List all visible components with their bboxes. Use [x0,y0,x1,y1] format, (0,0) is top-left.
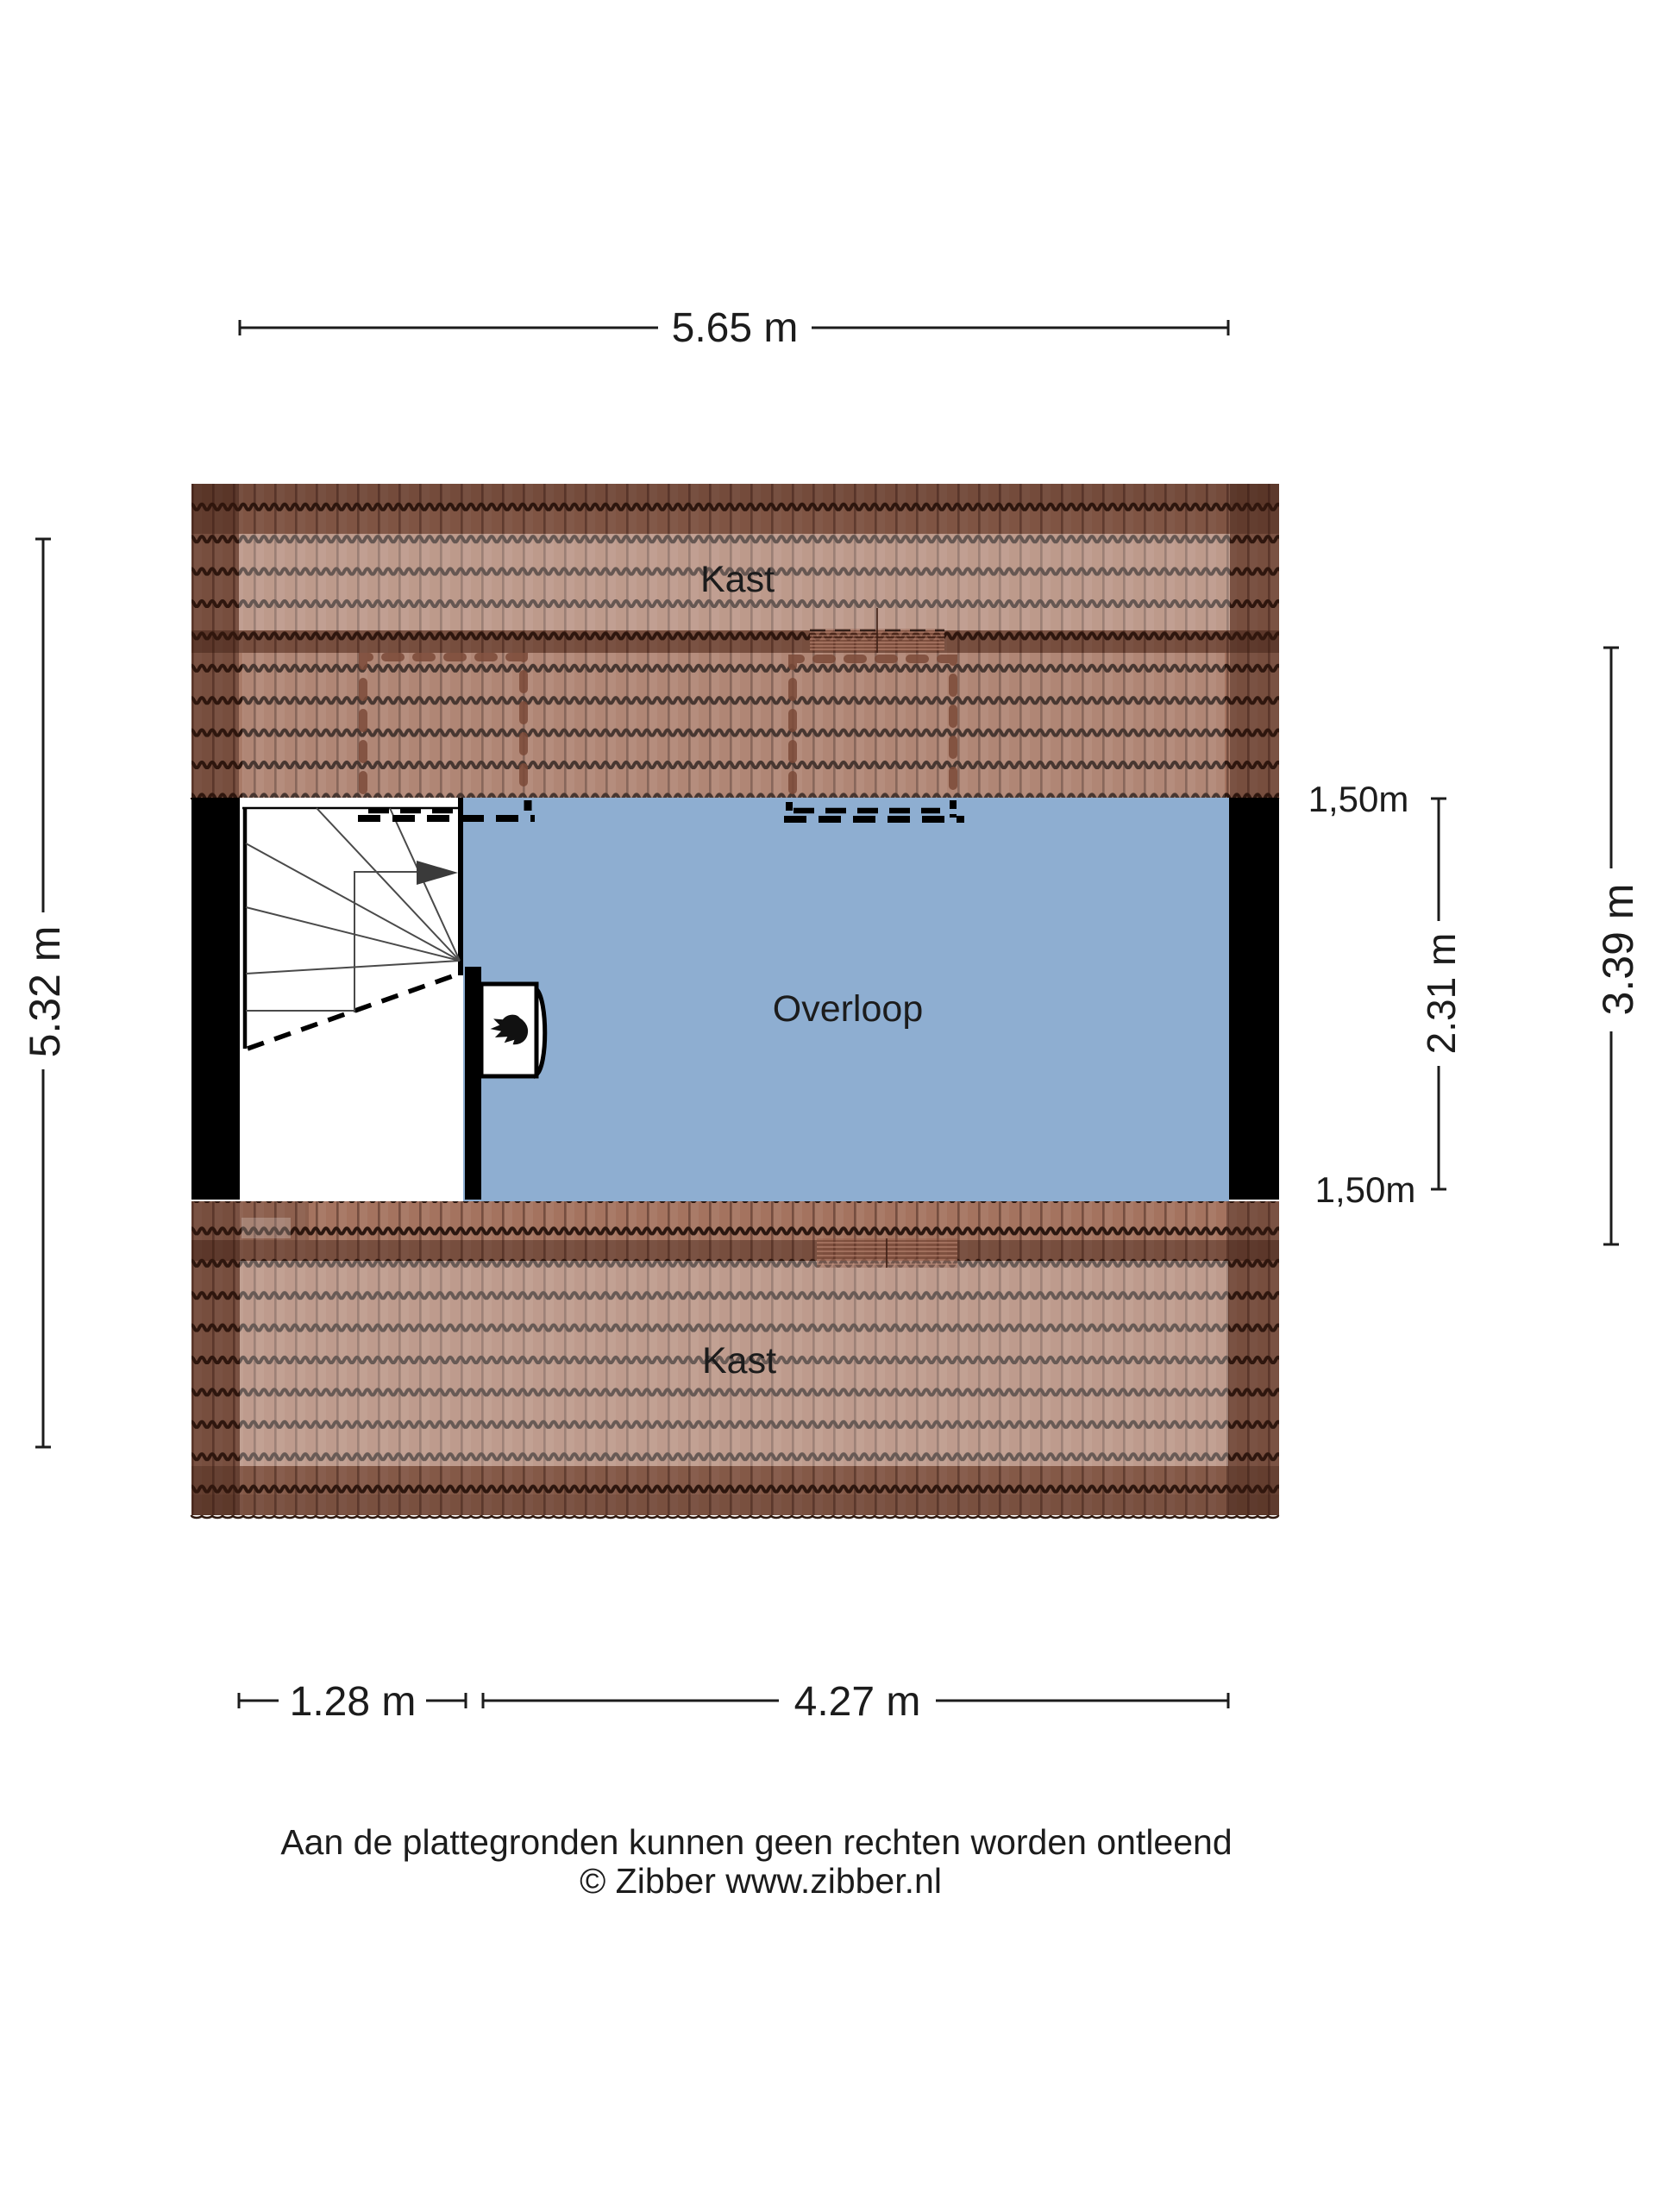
svg-text:© Zibber www.zibber.nl: © Zibber www.zibber.nl [580,1861,942,1901]
svg-text:Overloop: Overloop [773,988,923,1030]
svg-text:Kast: Kast [700,559,775,600]
svg-text:1,50m: 1,50m [1315,1169,1416,1210]
svg-text:1,50m: 1,50m [1308,779,1409,819]
svg-text:Kast: Kast [702,1340,776,1382]
svg-text:4.27 m: 4.27 m [794,1679,921,1725]
svg-text:5.65 m: 5.65 m [672,305,799,351]
svg-text:Aan de plattegronden kunnen ge: Aan de plattegronden kunnen geen rechten… [280,1822,1232,1862]
svg-text:3.39 m: 3.39 m [1594,884,1642,1016]
svg-text:2.31 m: 2.31 m [1419,933,1464,1055]
svg-text:1.28 m: 1.28 m [290,1679,417,1725]
svg-text:5.32 m: 5.32 m [21,926,69,1058]
